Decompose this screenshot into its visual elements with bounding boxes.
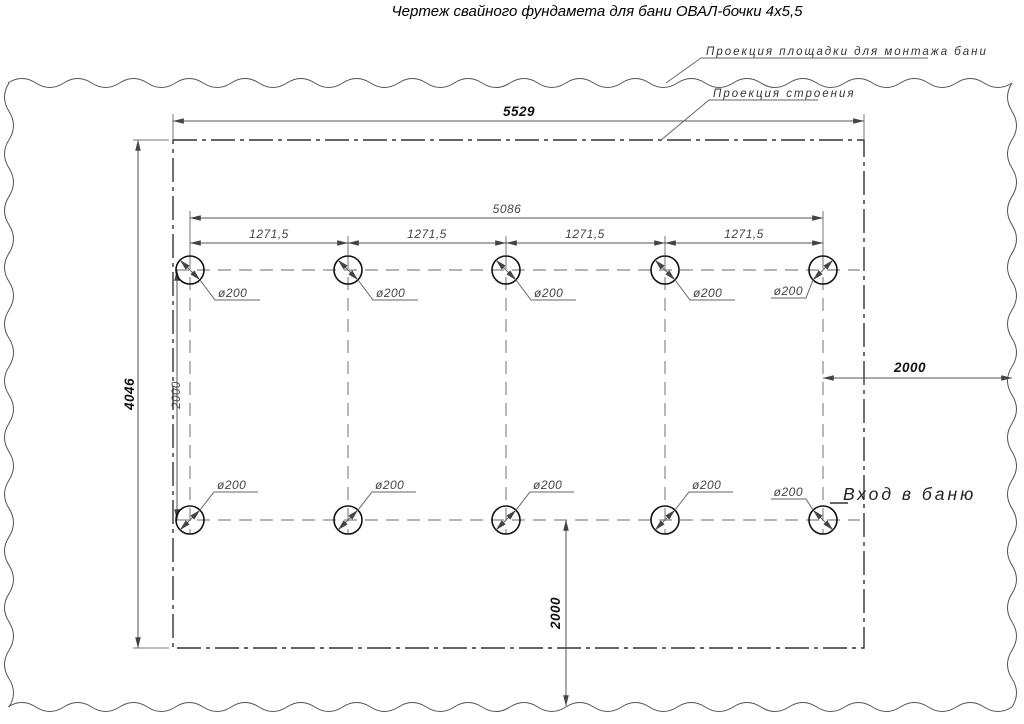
wavy-border-top: [8, 79, 1012, 88]
pile-top-1: ø200: [176, 256, 260, 300]
pile-bottom-5: ø200: [771, 485, 837, 534]
dimension-value-pile-spacing: 1271,5: [724, 227, 764, 241]
callout-platform: Проекция площадки для монтажа бани: [666, 46, 988, 83]
pile-diameter-label: ø200: [375, 478, 404, 492]
wavy-border-bottom: [8, 703, 1012, 712]
dimension-value-overall-height: 4046: [122, 378, 137, 411]
diameter-leader: [675, 492, 733, 510]
pile-top-2: ø200: [334, 256, 418, 300]
pile-diameter-label: ø200: [693, 286, 722, 300]
pile-top-5: ø200: [771, 256, 837, 298]
pile-top-3: ø200: [492, 256, 576, 300]
drawing-canvas: Чертеж свайного фундамета для бани ОВАЛ-…: [0, 0, 1024, 724]
pile-diameter-label: ø200: [774, 284, 803, 298]
pile-diameter-label: ø200: [218, 286, 247, 300]
pile-diameter-label: ø200: [692, 478, 721, 492]
dimension-value-right-offset: 2000: [893, 360, 926, 375]
pile-diameter-label: ø200: [533, 478, 562, 492]
diameter-leader: [516, 492, 574, 510]
pile-diameter-label: ø200: [376, 286, 405, 300]
foundation-drawing: Чертеж свайного фундамета для бани ОВАЛ-…: [0, 0, 1024, 724]
dimension-value-pile-spacing: 1271,5: [407, 227, 447, 241]
pile-axis-grid: [176, 256, 860, 534]
pile-bottom-1: ø200: [176, 478, 258, 534]
dimension-value-overall-width: 5529: [503, 104, 535, 119]
pile-diameter-label: ø200: [534, 286, 563, 300]
callout-building-label: Проекция строения: [713, 88, 856, 100]
callout-entrance: Вход в баню: [830, 484, 976, 504]
pile-diameter-label: ø200: [774, 485, 803, 499]
dimension-bottom-offset: 2000: [548, 520, 566, 706]
dimension-overall-width: 5529: [173, 104, 864, 139]
callout-platform-label: Проекция площадки для монтажа бани: [706, 46, 988, 58]
dimension-pile-span: 5086 1271,5 1271,5 1271,5 1271,5: [190, 202, 823, 256]
diameter-leader: [200, 492, 258, 510]
dimension-value-pile-spacing: 1271,5: [249, 227, 289, 241]
pile-bottom-4: ø200: [651, 478, 733, 534]
pile-diameter-label: ø200: [217, 478, 246, 492]
pile-bottom-3: ø200: [492, 478, 574, 534]
dimension-value-pile-spacing: 1271,5: [565, 227, 605, 241]
entrance-label: Вход в баню: [843, 484, 976, 504]
building-outline: [173, 140, 864, 648]
wavy-border-left: [5, 83, 14, 707]
dimension-value-row-distance: 2000: [171, 381, 183, 410]
dimension-overall-height: 4046: [122, 140, 169, 648]
pile-bottom-2: ø200: [334, 478, 416, 534]
dimension-value-bottom-offset: 2000: [548, 597, 563, 630]
callout-building: Проекция строения: [660, 88, 856, 141]
wavy-border-right: [1008, 83, 1017, 707]
pile-top-4: ø200: [651, 256, 735, 300]
drawing-title: Чертеж свайного фундамета для бани ОВАЛ-…: [392, 3, 804, 20]
dimension-value-pile-span: 5086: [493, 202, 522, 216]
diameter-leader: [771, 499, 813, 510]
diameter-leader: [358, 492, 416, 510]
dimension-right-offset: 2000: [823, 360, 1012, 378]
